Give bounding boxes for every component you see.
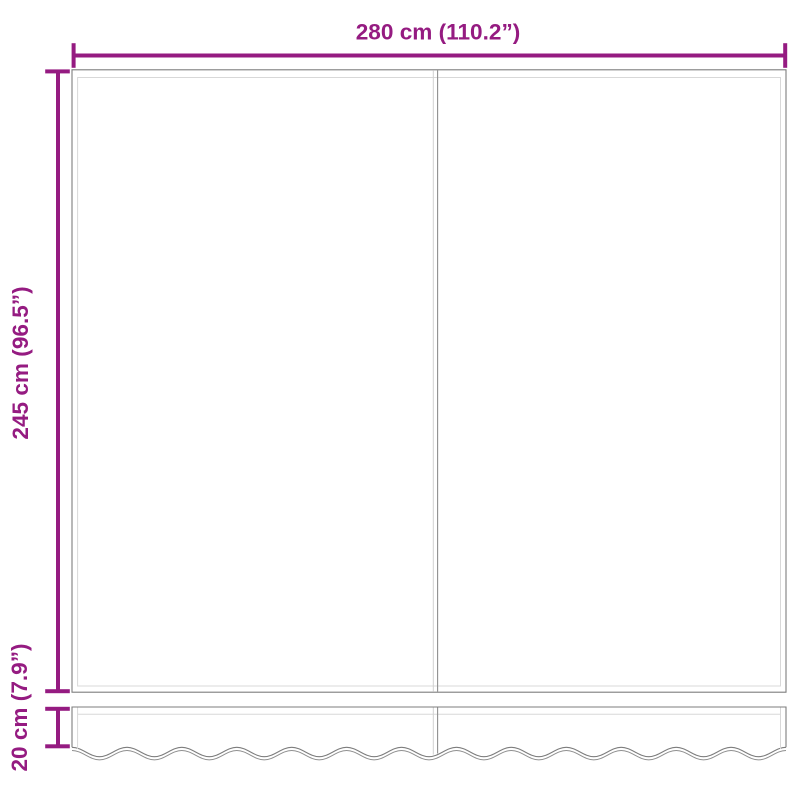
svg-text:280 cm (110.2”): 280 cm (110.2”) [356,20,521,45]
svg-text:245 cm (96.5”): 245 cm (96.5”) [8,286,33,439]
svg-text:20 cm (7.9”): 20 cm (7.9”) [7,643,32,771]
